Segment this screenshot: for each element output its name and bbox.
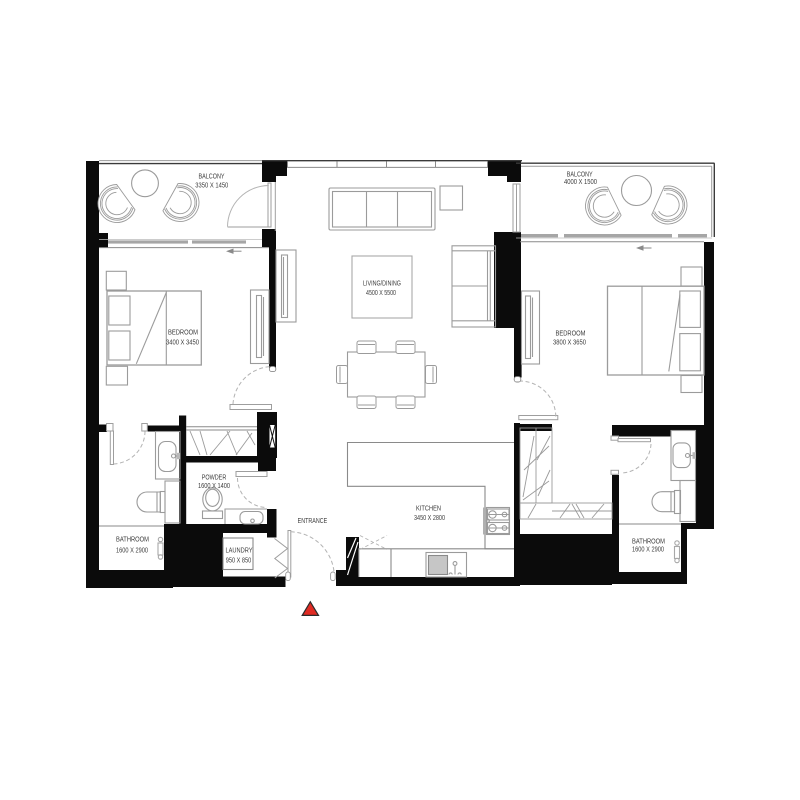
svg-text:POWDER: POWDER [202,474,227,481]
svg-text:3400 X 3450: 3400 X 3450 [166,339,199,346]
svg-text:BALCONY: BALCONY [567,171,593,178]
svg-text:4500 X 5500: 4500 X 5500 [366,290,396,297]
svg-text:1600 X 1400: 1600 X 1400 [198,483,230,490]
svg-text:950 X 850: 950 X 850 [226,558,252,565]
svg-text:1600 X 2900: 1600 X 2900 [116,547,148,554]
svg-text:3350 X 1450: 3350 X 1450 [195,182,228,189]
svg-text:LAUNDRY: LAUNDRY [226,547,253,554]
svg-text:1600 X 2900: 1600 X 2900 [632,546,664,553]
svg-text:KITCHEN: KITCHEN [416,506,441,513]
svg-text:ENTRANCE: ENTRANCE [298,518,328,525]
svg-text:4000 X 1500: 4000 X 1500 [564,179,597,186]
svg-text:3450 X 2800: 3450 X 2800 [414,515,445,522]
svg-text:BATHROOM: BATHROOM [116,536,149,543]
svg-text:BEDROOM: BEDROOM [556,330,586,337]
svg-text:LIVING/DINING: LIVING/DINING [363,280,401,287]
svg-text:BATHROOM: BATHROOM [632,538,665,545]
svg-text:3800 X 3650: 3800 X 3650 [553,339,586,346]
svg-text:BALCONY: BALCONY [199,173,225,180]
svg-text:BEDROOM: BEDROOM [168,329,198,336]
